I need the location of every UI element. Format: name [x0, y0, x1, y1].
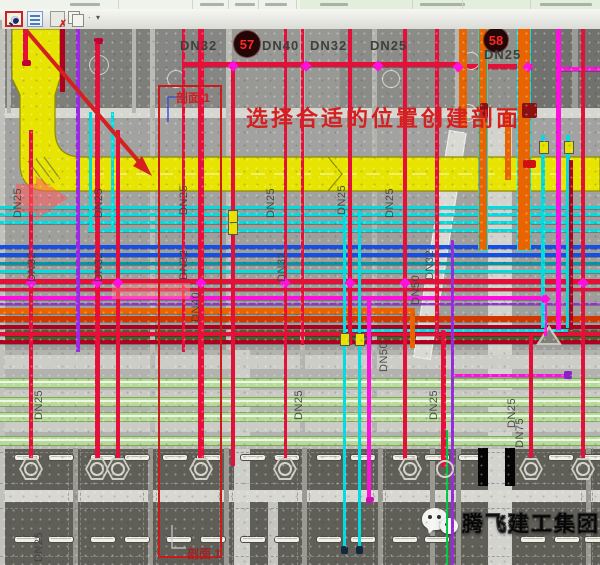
drawing-canvas[interactable]: 5758DN32DN40DN32DN25DN25DN25DN25DN25DN25… [0, 29, 600, 565]
section-label-bottom[interactable]: 剖面 1 [187, 545, 221, 562]
pipe-size-label[interactable]: DN32 [180, 38, 217, 53]
properties-palette-icon[interactable] [27, 11, 43, 27]
ribbon-text-blob [265, 3, 287, 6]
ribbon-text-blob [320, 3, 348, 6]
dropdown-arrow[interactable]: ▾ [96, 13, 100, 22]
pipe-size-label[interactable]: DN25 [484, 47, 521, 62]
pipe-size-label[interactable]: DN40 [190, 292, 202, 322]
pipe-size-label[interactable]: DN50 [378, 342, 390, 372]
pipe-size-label[interactable]: DN25 [384, 188, 396, 218]
ribbon-divider [296, 0, 297, 9]
ribbon-divider [462, 0, 463, 9]
pipe-size-label[interactable]: DN25 [12, 188, 24, 218]
ribbon-text-blob [235, 3, 255, 6]
section-label-top[interactable]: 剖面 1 [176, 89, 210, 106]
pipe-size-label[interactable]: DN25 [93, 188, 105, 218]
pipe-size-label[interactable]: DN25 [428, 390, 440, 420]
pipe-size-label[interactable]: DN75 [514, 418, 526, 448]
pipe-size-label[interactable]: DN25 [370, 38, 407, 53]
pipe-size-label[interactable]: DN40 [262, 38, 299, 53]
pipe-size-label[interactable]: DN25 [336, 185, 348, 215]
ribbon-divider [228, 0, 229, 9]
ribbon-divider [192, 0, 193, 9]
pipe-size-label[interactable]: DN25 [293, 390, 305, 420]
pipe-size-label[interactable]: DN25 [178, 185, 190, 215]
ribbon-divider [258, 0, 259, 9]
instruction-text[interactable]: 选择合适的位置创建剖面 [246, 101, 521, 133]
section-tag[interactable]: 57 [234, 31, 260, 57]
pipe-size-label[interactable]: DN32 [276, 252, 288, 282]
pipe-size-label[interactable]: DN32 [178, 250, 190, 280]
ribbon-text-blob [70, 3, 100, 6]
pipe-size-label[interactable]: DN32 [310, 38, 347, 53]
ribbon-divider [412, 0, 413, 9]
paste-icon[interactable] [68, 11, 83, 27]
ribbon-divider [118, 0, 119, 9]
ribbon-divider [530, 0, 531, 9]
ribbon-text-blob [540, 3, 592, 6]
pipe-size-label[interactable]: DN25 [33, 390, 45, 420]
ribbon-text-blob [420, 3, 465, 6]
pipe-size-label[interactable]: DN25 [33, 532, 45, 562]
pipe-size-label[interactable]: DN32 [26, 252, 38, 282]
quick-access-toolbar: ✗ · ▾ [0, 9, 600, 30]
dropdown-dot[interactable]: · [88, 13, 91, 22]
section-tool-icon[interactable] [5, 11, 23, 27]
pipe-size-label[interactable]: DN50 [410, 275, 422, 305]
pipe-size-label[interactable]: DN32 [93, 252, 105, 282]
purge-icon[interactable]: ✗ [50, 11, 65, 27]
pipe-size-label[interactable]: DN25 [265, 188, 277, 218]
pipe-size-label[interactable]: DN32 [424, 250, 436, 280]
bim-application-window: ✗ · ▾ 5758DN32DN40DN32DN25DN25DN25DN25DN… [0, 0, 600, 565]
ribbon-text-blob [200, 3, 224, 6]
